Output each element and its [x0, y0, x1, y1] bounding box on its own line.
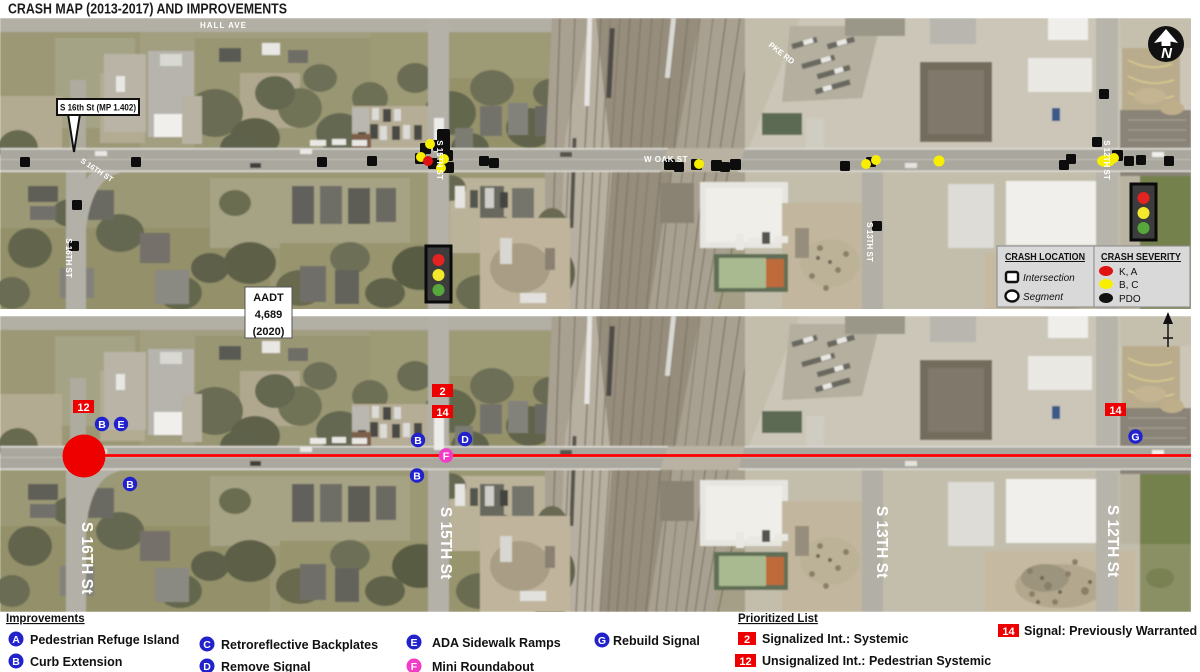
svg-text:S 16TH St: S 16TH St — [78, 522, 95, 594]
svg-text:Rebuild Signal: Rebuild Signal — [613, 634, 700, 648]
svg-text:E: E — [117, 419, 124, 431]
svg-text:HALL AVE: HALL AVE — [200, 21, 247, 30]
svg-text:CRASH SEVERITY: CRASH SEVERITY — [1101, 252, 1181, 263]
svg-text:B: B — [98, 419, 106, 431]
svg-text:Segment: Segment — [1023, 292, 1064, 303]
svg-text:14: 14 — [1002, 626, 1015, 638]
svg-text:F: F — [443, 451, 450, 463]
svg-text:S 12TH ST: S 12TH ST — [1102, 140, 1111, 180]
svg-text:Retroreflective Backplates: Retroreflective Backplates — [221, 638, 378, 652]
svg-text:Pedestrian Refuge Island: Pedestrian Refuge Island — [30, 633, 179, 647]
svg-text:S 15TH ST: S 15TH ST — [435, 140, 444, 180]
svg-text:G: G — [598, 635, 606, 647]
svg-text:Improvements: Improvements — [6, 613, 85, 625]
svg-text:CRASH MAP (2013-2017) AND IMPR: CRASH MAP (2013-2017) AND IMPROVEMENTS — [8, 2, 287, 18]
svg-text:Unsignalized Int.: Pedestrian: Unsignalized Int.: Pedestrian Systemic — [762, 654, 991, 668]
svg-text:PDO: PDO — [1119, 294, 1141, 305]
svg-text:4,689: 4,689 — [255, 309, 283, 321]
svg-text:S 13TH St: S 13TH St — [873, 506, 890, 578]
svg-text:14: 14 — [436, 407, 449, 419]
svg-text:AADT: AADT — [253, 292, 284, 304]
svg-text:ADA Sidewalk Ramps: ADA Sidewalk Ramps — [432, 636, 561, 650]
svg-text:D: D — [461, 434, 469, 446]
svg-text:W OAK ST: W OAK ST — [644, 155, 688, 164]
svg-text:K, A: K, A — [1119, 267, 1138, 278]
svg-text:12: 12 — [739, 656, 751, 668]
svg-text:S 12TH St: S 12TH St — [1104, 505, 1121, 577]
svg-text:F: F — [411, 661, 418, 672]
svg-text:B: B — [12, 656, 20, 668]
svg-text:S 16TH ST: S 16TH ST — [64, 238, 73, 278]
svg-text:(2020): (2020) — [253, 326, 285, 338]
svg-text:CRASH LOCATION: CRASH LOCATION — [1005, 252, 1085, 263]
svg-text:A: A — [12, 634, 20, 646]
svg-text:Remove Signal: Remove Signal — [221, 660, 311, 672]
svg-text:B: B — [413, 471, 421, 483]
svg-text:S 15TH St: S 15TH St — [437, 507, 454, 579]
svg-text:Curb Extension: Curb Extension — [30, 655, 122, 669]
svg-text:2: 2 — [744, 634, 750, 646]
svg-text:Signal: Previously Warranted: Signal: Previously Warranted — [1024, 624, 1197, 638]
svg-text:B, C: B, C — [1119, 280, 1138, 291]
svg-text:C: C — [203, 639, 211, 651]
svg-text:Signalized Int.: Systemic: Signalized Int.: Systemic — [762, 632, 909, 646]
svg-text:2: 2 — [439, 386, 445, 398]
svg-text:14: 14 — [1109, 405, 1122, 417]
svg-text:S 13TH ST: S 13TH ST — [865, 222, 874, 262]
svg-text:Prioritized List: Prioritized List — [738, 613, 818, 625]
svg-text:12: 12 — [77, 402, 89, 414]
svg-text:Intersection: Intersection — [1023, 273, 1075, 284]
svg-text:E: E — [410, 637, 417, 649]
svg-text:G: G — [1131, 432, 1139, 444]
svg-text:Mini Roundabout: Mini Roundabout — [432, 660, 535, 672]
svg-text:B: B — [414, 435, 422, 447]
svg-text:N: N — [1161, 45, 1173, 62]
svg-text:S 16th St (MP 1.402): S 16th St (MP 1.402) — [60, 103, 136, 114]
svg-text:B: B — [126, 479, 134, 491]
svg-text:D: D — [203, 661, 211, 672]
